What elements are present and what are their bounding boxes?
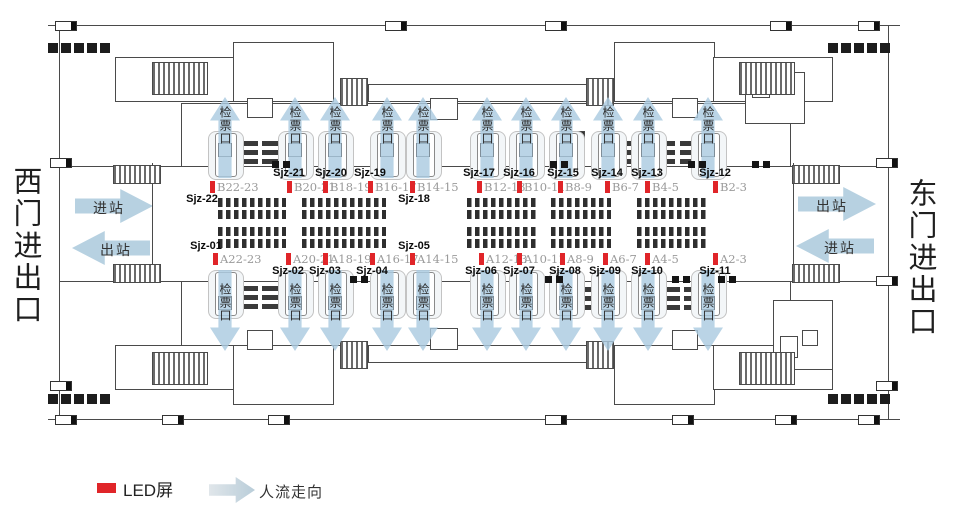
room <box>247 98 273 118</box>
rail-tick <box>729 276 736 283</box>
legend-flow-label: 人流走向 <box>259 481 323 502</box>
room <box>233 42 334 102</box>
legend-flow-arrow-icon <box>209 477 255 503</box>
bay-label: A14-15 <box>417 253 458 265</box>
led-screen-marker <box>287 181 292 193</box>
facade-block <box>854 43 864 53</box>
facade-block <box>74 43 84 53</box>
led-screen-id: Sjz-19 <box>354 168 386 179</box>
east-gate-label: 东门进出口 <box>903 178 937 338</box>
door-marker <box>775 415 797 425</box>
facade-block <box>61 394 71 404</box>
rail-tick <box>556 276 563 283</box>
bay-label: A6-7 <box>610 253 637 265</box>
led-screen-marker <box>477 181 482 193</box>
ticket-gate-label: 检票口 <box>559 283 573 322</box>
led-screen-id: Sjz-01 <box>190 241 222 252</box>
bay-label: B14-15 <box>417 181 459 193</box>
seating-block <box>551 239 611 248</box>
door-marker <box>50 381 72 391</box>
ticket-gate-label: 检票口 <box>641 283 655 322</box>
led-screen-marker <box>323 253 328 265</box>
ticket-gate-label: 检票口 <box>519 283 533 322</box>
room <box>672 98 698 118</box>
led-screen-id: Sjz-05 <box>398 241 430 252</box>
led-screen-id: Sjz-09 <box>589 266 621 277</box>
led-screen-id: Sjz-06 <box>465 266 497 277</box>
door-marker <box>858 415 880 425</box>
rail-tick <box>350 276 357 283</box>
door-marker <box>876 381 898 391</box>
bay-label: A2-3 <box>720 253 747 265</box>
ticket-gate-label: 检票口 <box>218 283 232 322</box>
ticket-gate-label: 检票口 <box>559 106 573 145</box>
bay-label: A18-19 <box>330 253 371 265</box>
seating-block <box>637 239 706 248</box>
rail-tick <box>672 276 679 283</box>
rail-tick <box>752 161 759 168</box>
escalator <box>152 62 208 95</box>
led-screen-marker <box>410 253 415 265</box>
seating-block <box>467 239 536 248</box>
facade-block <box>87 394 97 404</box>
bay-label: A8-9 <box>567 253 594 265</box>
facade-block <box>100 394 110 404</box>
wall <box>181 282 182 345</box>
ticket-gate-label: 检票口 <box>601 283 615 322</box>
seating-block <box>218 210 286 219</box>
ticket-gate-label: 检票口 <box>288 283 302 322</box>
rail-tick <box>545 276 552 283</box>
led-screen-marker <box>517 181 522 193</box>
led-screen-id: Sjz-07 <box>503 266 535 277</box>
bay-label: A22-23 <box>220 253 261 265</box>
led-screen-marker <box>323 181 328 193</box>
bay-label: B4-5 <box>652 181 679 193</box>
led-screen-id: Sjz-14 <box>591 168 623 179</box>
enter-flow-label-west: 进站 <box>93 198 125 218</box>
facade-block <box>828 43 838 53</box>
escalator <box>113 264 161 283</box>
led-screen-id: Sjz-20 <box>315 168 347 179</box>
led-screen-id: Sjz-22 <box>186 194 218 205</box>
seating-block <box>302 239 386 248</box>
facade-block <box>854 394 864 404</box>
room <box>233 345 334 405</box>
room <box>247 330 273 350</box>
escalator <box>340 78 368 106</box>
led-screen-id: Sjz-12 <box>699 168 731 179</box>
door-marker <box>545 21 567 31</box>
led-screen-marker <box>558 181 563 193</box>
escalator <box>739 62 795 95</box>
bay-label: A20-21 <box>293 253 334 265</box>
seating-block <box>551 227 611 236</box>
door-marker <box>55 415 77 425</box>
door-marker <box>385 21 407 31</box>
seating-block <box>551 210 611 219</box>
led-screen-id: Sjz-10 <box>631 266 663 277</box>
room <box>368 345 588 363</box>
bay-label: A4-5 <box>652 253 679 265</box>
ticket-gate-label: 检票口 <box>380 106 394 145</box>
door-marker <box>50 158 72 168</box>
enter-flow-label-east: 进站 <box>824 238 856 258</box>
facade-block <box>61 43 71 53</box>
led-screen-marker <box>517 253 522 265</box>
led-screen-id: Sjz-08 <box>549 266 581 277</box>
door-marker <box>268 415 290 425</box>
bay-label: B8-9 <box>565 181 592 193</box>
ticket-gate-label: 检票口 <box>641 106 655 145</box>
west-gate-label: 西门进出口 <box>8 166 42 326</box>
door-marker <box>55 21 77 31</box>
ticket-gate-label: 检票口 <box>328 106 342 145</box>
led-screen-id: Sjz-16 <box>503 168 535 179</box>
seating-block <box>302 210 386 219</box>
ticket-gate-label: 检票口 <box>701 106 715 145</box>
door-marker <box>672 415 694 425</box>
led-screen-marker <box>645 253 650 265</box>
door-marker <box>770 21 792 31</box>
led-screen-id: Sjz-18 <box>398 194 430 205</box>
facade-block <box>100 43 110 53</box>
rail-tick <box>688 161 695 168</box>
seating-block <box>218 198 286 207</box>
door-marker <box>545 415 567 425</box>
led-screen-marker <box>645 181 650 193</box>
led-screen-marker <box>713 253 718 265</box>
ticket-gate-label: 检票口 <box>519 106 533 145</box>
facade-block <box>867 394 877 404</box>
facade-block <box>880 394 890 404</box>
facade-block <box>74 394 84 404</box>
wall <box>59 25 60 420</box>
rail-tick <box>718 276 725 283</box>
rail-tick <box>361 276 368 283</box>
bay-label: B18-19 <box>330 181 372 193</box>
wall <box>181 103 182 166</box>
legend-led-label: LED屏 <box>123 476 173 501</box>
led-screen-id: Sjz-15 <box>547 168 579 179</box>
door-marker <box>876 276 898 286</box>
led-screen-id: Sjz-04 <box>356 266 388 277</box>
seating-block <box>467 198 536 207</box>
led-screen-marker <box>713 181 718 193</box>
led-screen-marker <box>560 253 565 265</box>
ticket-gate-label: 检票口 <box>601 106 615 145</box>
room <box>802 330 818 346</box>
facade-block <box>867 43 877 53</box>
door-marker <box>162 415 184 425</box>
facade-block <box>828 394 838 404</box>
led-screen-marker <box>370 253 375 265</box>
door-marker <box>876 158 898 168</box>
bay-label: B6-7 <box>612 181 639 193</box>
led-screen-marker <box>410 181 415 193</box>
ticket-gate-label: 检票口 <box>701 283 715 322</box>
facade-block <box>87 43 97 53</box>
exit-flow-label-east: 出站 <box>816 196 848 216</box>
seating-block <box>302 227 386 236</box>
facade-block <box>841 43 851 53</box>
escalator <box>152 352 208 385</box>
seating-block <box>218 239 286 248</box>
led-screen-marker <box>603 253 608 265</box>
escalator <box>792 165 840 184</box>
room <box>614 345 715 405</box>
facade-block <box>841 394 851 404</box>
ticket-gate-label: 检票口 <box>416 283 430 322</box>
escalator <box>340 341 368 369</box>
ticket-gate-label: 检票口 <box>380 283 394 322</box>
seating-block <box>637 227 706 236</box>
led-screen-id: Sjz-21 <box>273 168 305 179</box>
rail-tick <box>763 161 770 168</box>
led-screen-marker <box>213 253 218 265</box>
led-screen-marker <box>286 253 291 265</box>
room <box>368 84 588 102</box>
facade-block <box>48 394 58 404</box>
rail-tick <box>683 276 690 283</box>
led-screen-marker <box>605 181 610 193</box>
facade-block <box>880 43 890 53</box>
ticket-gate-label: 检票口 <box>480 106 494 145</box>
led-screen-id: Sjz-11 <box>699 266 730 277</box>
bay-label: B22-23 <box>217 181 259 193</box>
led-screen-id: Sjz-13 <box>631 168 663 179</box>
seating-block <box>551 198 611 207</box>
wall <box>888 25 889 420</box>
led-screen-marker <box>479 253 484 265</box>
ticket-gate-label: 检票口 <box>480 283 494 322</box>
ticket-gate-label: 检票口 <box>218 106 232 145</box>
ticket-gate-label: 检票口 <box>288 106 302 145</box>
seating-block <box>467 227 536 236</box>
escalator <box>739 352 795 385</box>
led-screen-marker <box>210 181 215 193</box>
station-floorplan: 西门进出口 东门进出口 进站 出站 出站 进站 LED屏 人流走向 检票口检票口… <box>0 0 972 530</box>
seating-block <box>218 227 286 236</box>
escalator <box>113 165 161 184</box>
ticket-gate-label: 检票口 <box>328 283 342 322</box>
exit-flow-label-west: 出站 <box>100 240 132 260</box>
seating-block <box>637 198 706 207</box>
room <box>614 42 715 102</box>
room <box>672 330 698 350</box>
seating-block <box>467 210 536 219</box>
legend-led-swatch <box>97 483 116 493</box>
led-screen-id: Sjz-03 <box>309 266 341 277</box>
led-screen-id: Sjz-02 <box>272 266 304 277</box>
facade-block <box>48 43 58 53</box>
led-screen-id: Sjz-17 <box>463 168 495 179</box>
seating-block <box>302 198 386 207</box>
door-marker <box>858 21 880 31</box>
led-screen-marker <box>368 181 373 193</box>
seating-block <box>637 210 706 219</box>
bay-label: B2-3 <box>720 181 747 193</box>
escalator <box>792 264 840 283</box>
ticket-gate-label: 检票口 <box>416 106 430 145</box>
